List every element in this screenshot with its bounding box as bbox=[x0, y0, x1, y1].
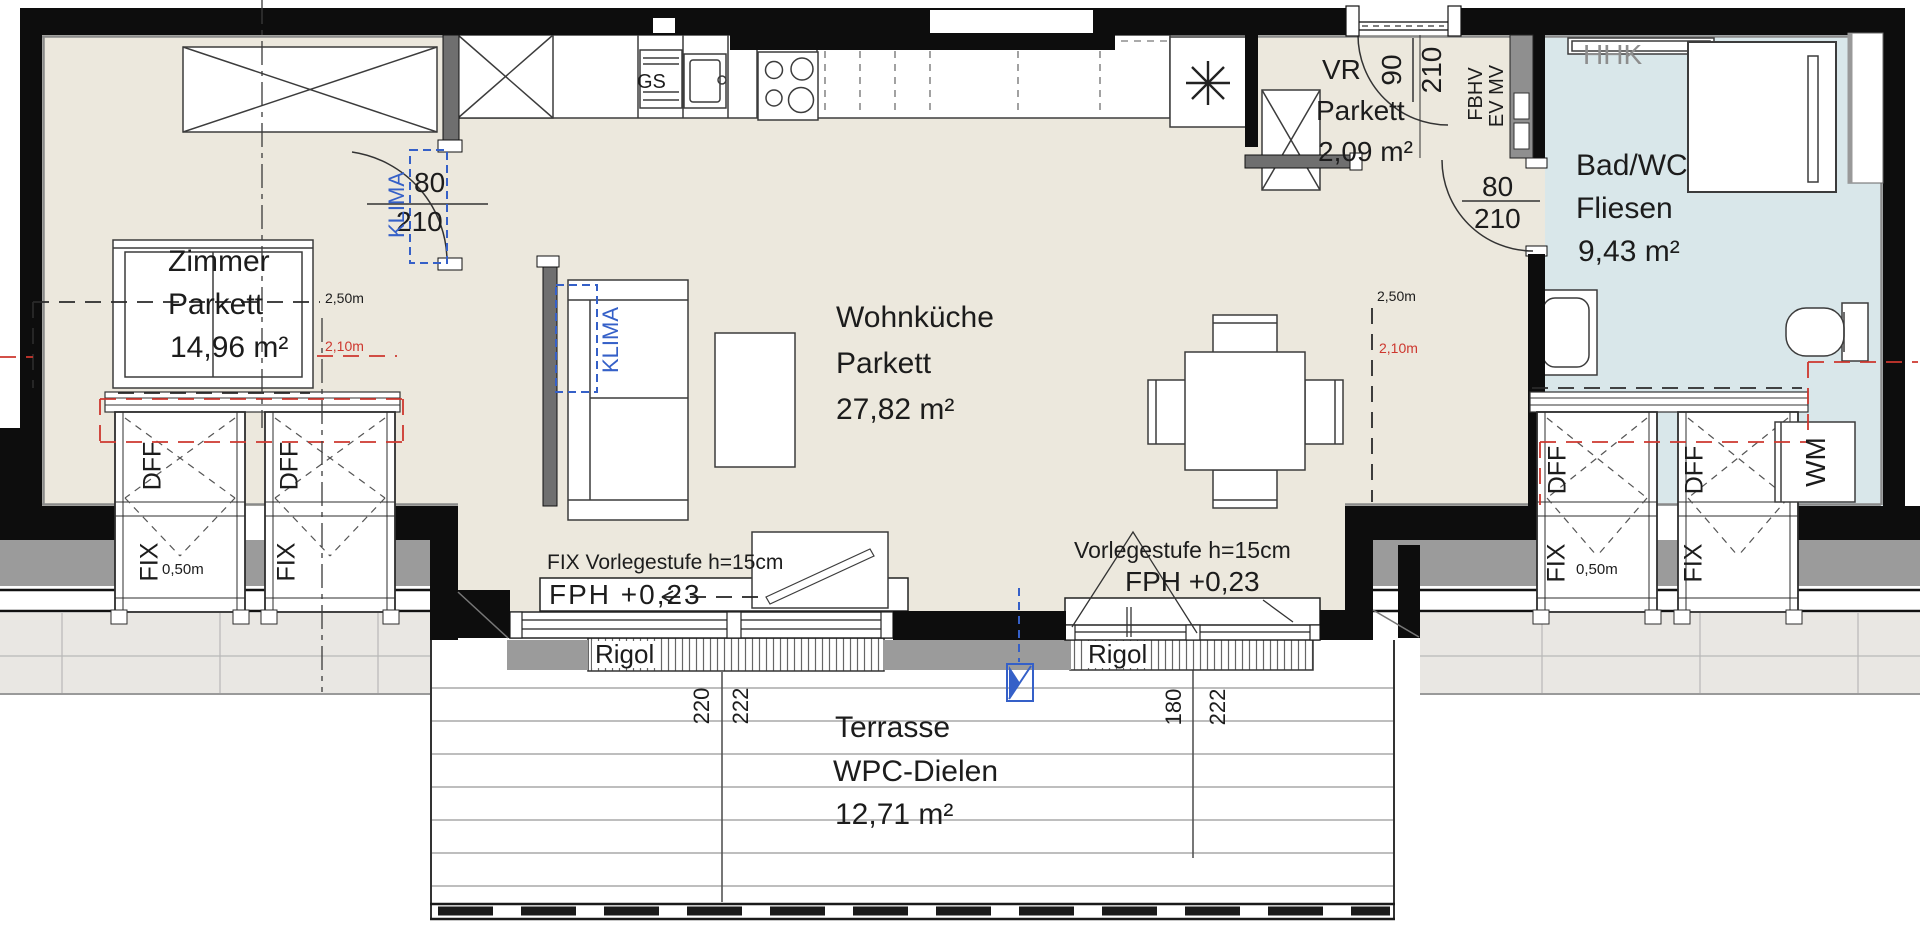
dim-entrance-door-height: 210 bbox=[1418, 47, 1446, 94]
window-label-fix-1: FIX bbox=[138, 543, 163, 582]
height-label-250-left: 2,50m bbox=[325, 291, 364, 306]
room-label-terrasse-name: Terrasse bbox=[835, 712, 950, 744]
height-label-250-right: 2,50m bbox=[1377, 289, 1416, 304]
wardrobe bbox=[183, 47, 437, 132]
dining-table bbox=[1185, 352, 1305, 470]
room-label-bad-name: Bad/WC bbox=[1576, 150, 1688, 182]
sofa bbox=[568, 280, 688, 520]
window-label-dff-2: DFF bbox=[278, 442, 303, 491]
room-label-wohnkueche-area: 27,82 m² bbox=[836, 394, 954, 426]
room-label-zimmer-name: Zimmer bbox=[168, 246, 270, 278]
room-label-vr-floor: Parkett bbox=[1316, 96, 1405, 125]
shaft-label-fbhv: FBHV bbox=[1466, 67, 1486, 120]
washing-machine-label: WM bbox=[1802, 437, 1830, 487]
dim-bad-door-height: 210 bbox=[1474, 204, 1521, 233]
window-label-fix-2: FIX bbox=[275, 543, 300, 582]
dim-zimmer-door-width: 80 bbox=[414, 168, 445, 197]
room-label-terrasse-floor: WPC-Dielen bbox=[833, 756, 998, 788]
room-label-vr-name: VR bbox=[1322, 55, 1361, 84]
height-label-210-right: 2,10m bbox=[1379, 341, 1418, 356]
window-fix-height-right: 0,50m bbox=[1576, 562, 1618, 578]
step-label-left: FIX Vorlegestufe h=15cm bbox=[547, 552, 783, 574]
room-label-terrasse-area: 12,71 m² bbox=[835, 799, 953, 831]
window-label-dff-1: DFF bbox=[141, 442, 166, 491]
room-label-bad-area: 9,43 m² bbox=[1578, 236, 1680, 268]
terrace-dim-180: 180 bbox=[1163, 689, 1185, 726]
window-label-dff-4: DFF bbox=[1683, 446, 1708, 495]
klima-label-sofa: KLIMA bbox=[600, 307, 622, 373]
fridge-star-icon bbox=[1186, 61, 1230, 105]
window-label-fix-4: FIX bbox=[1682, 544, 1707, 583]
dim-entrance-door-width: 90 bbox=[1378, 54, 1406, 85]
fph-label-left: FPH +0,23 bbox=[549, 580, 702, 609]
dishwasher-label: GS bbox=[637, 72, 666, 93]
room-label-bad-floor: Fliesen bbox=[1576, 193, 1673, 225]
coffee-table bbox=[715, 333, 795, 467]
terrace-dim-220: 220 bbox=[691, 688, 713, 725]
room-label-wohnkueche-floor: Parkett bbox=[836, 348, 931, 380]
window-label-dff-3: DFF bbox=[1546, 446, 1571, 495]
sink bbox=[684, 54, 726, 108]
room-label-vr-area: 2,09 m² bbox=[1318, 137, 1413, 166]
terrace-dim-222-right: 222 bbox=[1207, 689, 1229, 726]
step-band-right bbox=[1065, 598, 1320, 627]
floor-plan: Zimmer Parkett 14,96 m² Wohnküche Parket… bbox=[0, 0, 1920, 937]
fridge bbox=[1170, 37, 1248, 127]
room-label-wohnkueche-name: Wohnküche bbox=[836, 302, 994, 334]
window-label-fix-3: FIX bbox=[1545, 544, 1570, 583]
step-label-right: Vorlegestufe h=15cm bbox=[1074, 538, 1291, 562]
window-dff-fix bbox=[111, 412, 249, 624]
stove bbox=[758, 52, 818, 120]
window-fix-height-left: 0,50m bbox=[162, 562, 204, 578]
rigol-label-right: Rigol bbox=[1085, 641, 1150, 668]
klima-label-door: KLIMA bbox=[386, 172, 408, 238]
toilet bbox=[1786, 303, 1868, 361]
room-label-zimmer-floor: Parkett bbox=[168, 289, 263, 321]
dim-bad-door-width: 80 bbox=[1482, 172, 1513, 201]
height-label-210-left: 2,10m bbox=[325, 339, 364, 354]
vr-wardrobe bbox=[1262, 90, 1320, 190]
shower bbox=[1688, 42, 1836, 192]
glazing-left bbox=[510, 612, 893, 638]
towel-radiator-label: HHK bbox=[1583, 40, 1642, 69]
room-label-zimmer-area: 14,96 m² bbox=[170, 332, 288, 364]
shaft-label-ev-mv: EV MV bbox=[1487, 65, 1507, 127]
terrace-dim-222-left: 222 bbox=[730, 688, 752, 725]
fph-label-right: FPH +0,23 bbox=[1125, 567, 1260, 596]
rigol-label-left: Rigol bbox=[592, 641, 657, 668]
window-dff-fix bbox=[1533, 412, 1661, 624]
